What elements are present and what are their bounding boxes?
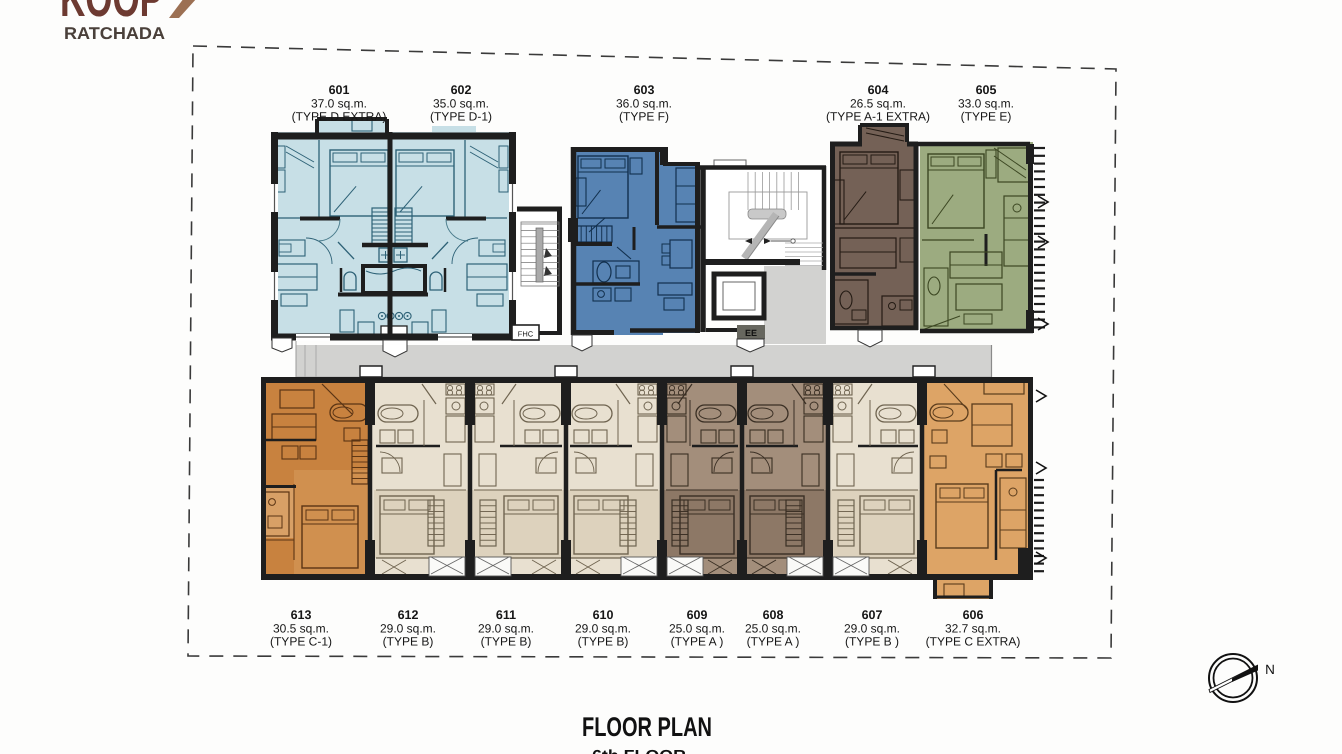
svg-text:35.0 sq.m.: 35.0 sq.m. (433, 97, 489, 111)
svg-text:610: 610 (593, 608, 614, 622)
svg-text:(TYPE A ): (TYPE A ) (671, 635, 724, 649)
svg-text:(TYPE E): (TYPE E) (961, 110, 1012, 124)
svg-text:(TYPE A-1 EXTRA): (TYPE A-1 EXTRA) (826, 110, 930, 124)
svg-text:604: 604 (868, 83, 889, 97)
svg-text:605: 605 (976, 83, 997, 97)
svg-text:30.5 sq.m.: 30.5 sq.m. (273, 622, 329, 636)
svg-text:25.0 sq.m.: 25.0 sq.m. (669, 622, 725, 636)
svg-text:26.5 sq.m.: 26.5 sq.m. (850, 97, 906, 111)
svg-text:29.0 sq.m.: 29.0 sq.m. (478, 622, 534, 636)
svg-text:FHC: FHC (518, 330, 534, 339)
svg-text:RATCHADA: RATCHADA (64, 24, 165, 43)
svg-text:602: 602 (451, 83, 472, 97)
svg-text:608: 608 (763, 608, 784, 622)
svg-text:613: 613 (291, 608, 312, 622)
svg-text:25.0 sq.m.: 25.0 sq.m. (745, 622, 801, 636)
svg-text:(TYPE F): (TYPE F) (619, 110, 669, 124)
svg-text:29.0 sq.m.: 29.0 sq.m. (380, 622, 436, 636)
svg-text:611: 611 (496, 608, 516, 622)
svg-text:29.0 sq.m.: 29.0 sq.m. (575, 622, 631, 636)
svg-text:33.0 sq.m.: 33.0 sq.m. (958, 97, 1014, 111)
svg-text:607: 607 (862, 608, 883, 622)
svg-text:(TYPE B): (TYPE B) (578, 635, 629, 649)
svg-text:(TYPE B): (TYPE B) (383, 635, 434, 649)
svg-text:EE: EE (745, 328, 757, 338)
svg-text:(TYPE C-1): (TYPE C-1) (270, 635, 332, 649)
svg-text:(TYPE B): (TYPE B) (481, 635, 532, 649)
svg-text:N: N (1265, 662, 1275, 677)
svg-text:29.0 sq.m.: 29.0 sq.m. (844, 622, 900, 636)
svg-text:612: 612 (398, 608, 419, 622)
svg-text:32.7 sq.m.: 32.7 sq.m. (945, 622, 1001, 636)
svg-text:37.0 sq.m.: 37.0 sq.m. (311, 97, 367, 111)
svg-text:36.0 sq.m.: 36.0 sq.m. (616, 97, 672, 111)
svg-text:6th FLOOR: 6th FLOOR (592, 748, 686, 754)
svg-text:(TYPE B ): (TYPE B ) (845, 635, 899, 649)
svg-text:603: 603 (634, 83, 655, 97)
svg-text:601: 601 (329, 83, 350, 97)
svg-text:(TYPE C EXTRA): (TYPE C EXTRA) (926, 635, 1021, 649)
svg-text:(TYPE A ): (TYPE A ) (747, 635, 800, 649)
svg-text:609: 609 (687, 608, 708, 622)
svg-text:(TYPE D EXTRA): (TYPE D EXTRA) (292, 110, 387, 124)
svg-text:FLOOR PLAN: FLOOR PLAN (582, 712, 712, 742)
svg-text:(TYPE D-1): (TYPE D-1) (430, 110, 492, 124)
svg-text:606: 606 (963, 608, 984, 622)
